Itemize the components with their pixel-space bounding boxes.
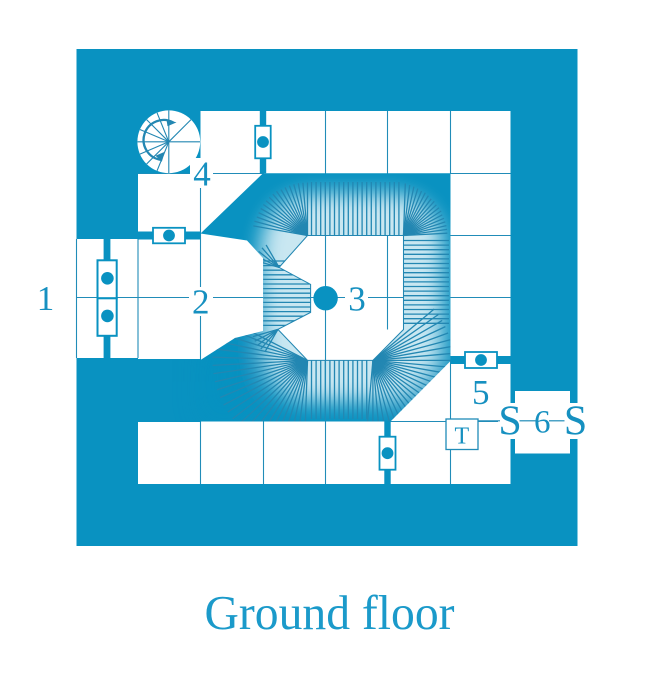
svg-text:4: 4: [193, 154, 211, 193]
svg-text:2: 2: [192, 283, 210, 322]
svg-text:3: 3: [348, 279, 366, 318]
svg-text:1: 1: [37, 279, 55, 318]
svg-text:S: S: [564, 399, 587, 445]
svg-text:5: 5: [472, 373, 490, 412]
svg-text:S: S: [498, 399, 521, 445]
svg-text:Ground floor: Ground floor: [205, 585, 455, 640]
svg-text:T: T: [454, 424, 469, 450]
svg-text:6: 6: [534, 404, 551, 440]
